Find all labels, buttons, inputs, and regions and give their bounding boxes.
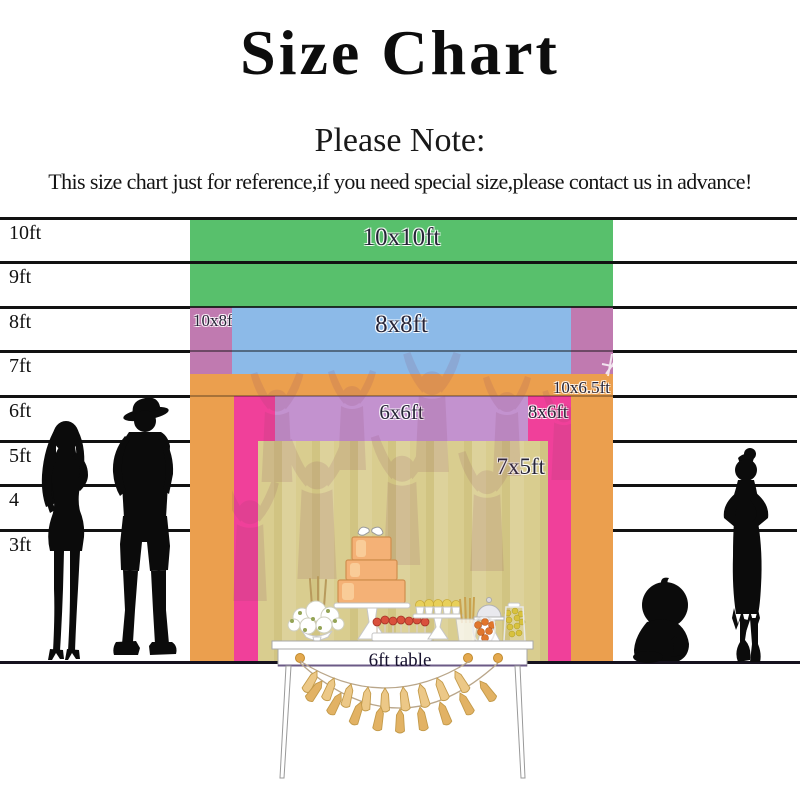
page-title: Size Chart [0,16,800,90]
lovebirds-cake-topper [358,527,383,535]
table-size-label: 6ft table [320,650,480,672]
size-label-10x8ft: 10x8ft [193,311,237,331]
sparkle-icon [598,352,626,382]
ruler-line-9ft-over-rects [190,261,613,264]
candy-bar-jars [456,597,525,642]
size-chart-infographic: Size Chart Please Note: This size chart … [0,0,800,800]
flower-bouquet [288,577,344,641]
ruler-label-9ft: 9ft [9,266,31,289]
table-leg-right [515,666,525,778]
ruler-label-7ft: 7ft [9,355,31,378]
ruler-label-10ft: 10ft [9,222,41,245]
yellow-candy-jar [504,603,525,641]
table-leg-left [280,666,291,778]
man-with-hat-silhouette [92,396,192,664]
ruler-label-8ft: 8ft [9,311,31,334]
dessert-table-illustration [250,495,560,795]
sitting-baby-silhouette [627,576,701,664]
girl-hands-on-hips-silhouette [700,448,790,664]
size-label-10x10ft: 10x10ft [190,224,613,252]
note-heading: Please Note: [0,122,800,160]
notice-text: This size chart just for reference,if yo… [0,169,800,195]
ruler-line-8ft-over-rects [190,306,613,308]
cake-pops [372,616,432,641]
